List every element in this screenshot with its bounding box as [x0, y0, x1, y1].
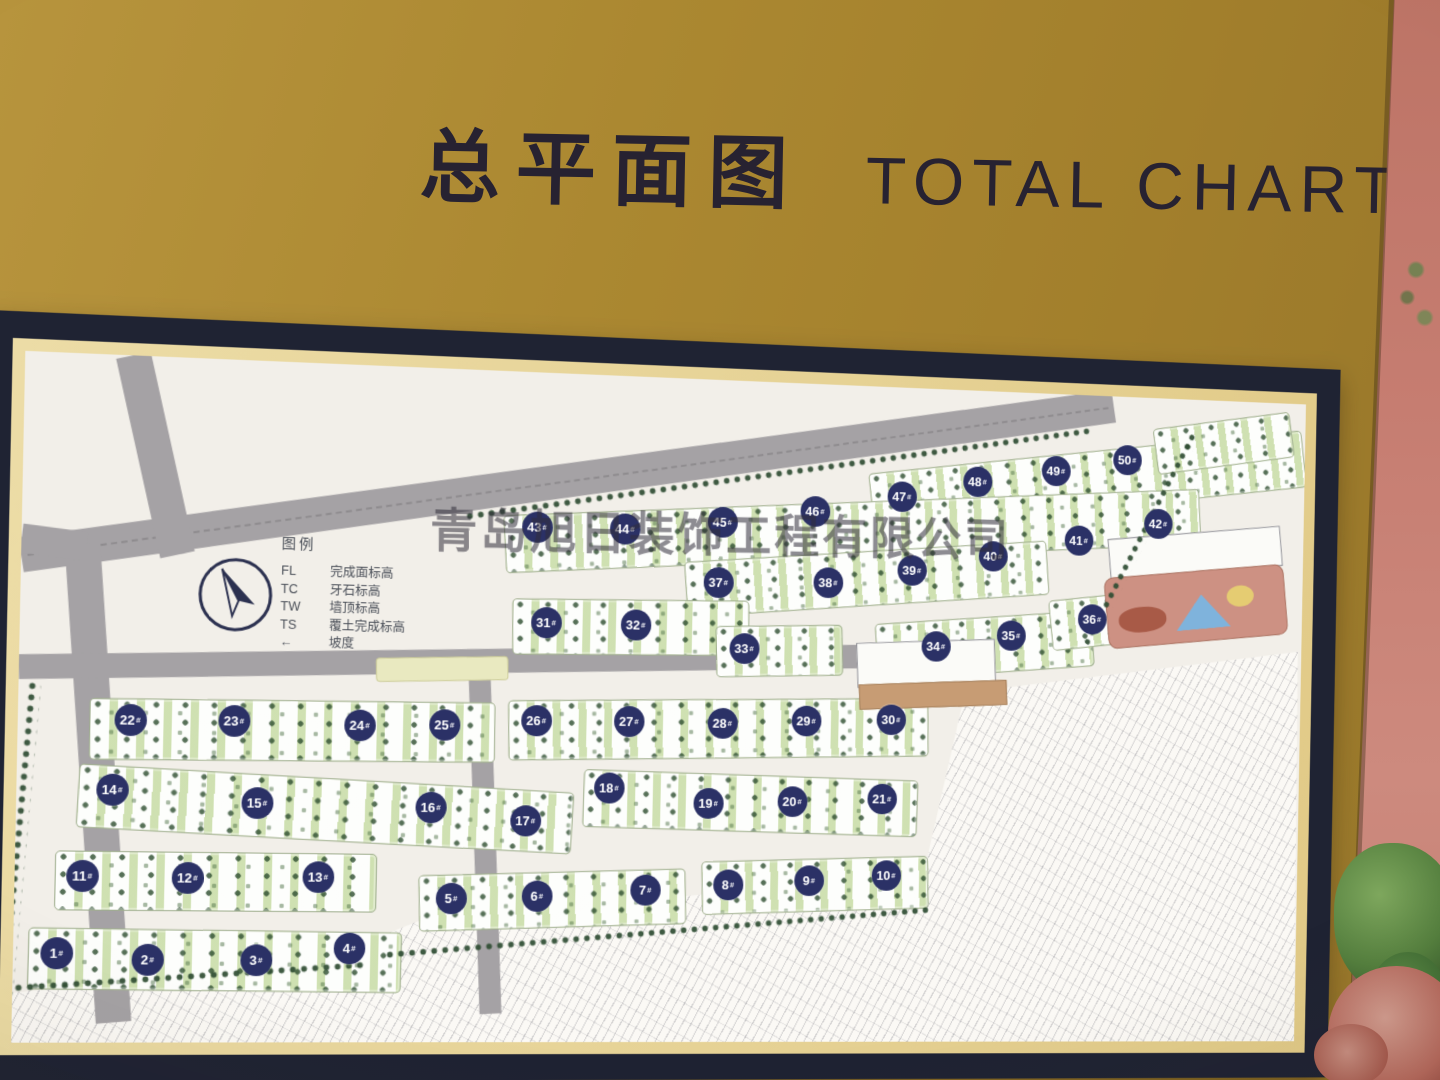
building-number-badge: 15#	[241, 786, 273, 818]
site-plan-map: 图例 FL 完成面标高 TC 牙石标高 TW 墙顶标高	[11, 351, 1306, 1043]
red-leaf-bush	[1314, 1024, 1388, 1080]
building-number-badge: 36#	[1077, 604, 1106, 635]
building-number-badge: 30#	[876, 704, 906, 735]
building-number-badge: 38#	[813, 567, 843, 598]
building-number-badge: 6#	[521, 880, 552, 911]
building-number-badge: 48#	[963, 466, 993, 497]
building-number-badge: 22#	[114, 703, 147, 736]
building-number-badge: 4#	[333, 932, 365, 964]
building-number-badge: 25#	[428, 709, 460, 741]
watermark-text: 青岛旭日装饰工程有限公司	[430, 491, 1011, 570]
building-number-badge: 1#	[40, 937, 73, 969]
building-number-badge: 50#	[1113, 444, 1142, 475]
building-number-badge: 21#	[867, 783, 897, 814]
building-number-badge: 33#	[729, 632, 760, 663]
building-number-badge: 19#	[693, 787, 724, 818]
building-number-badge: 13#	[302, 861, 334, 893]
building-number-badge: 31#	[530, 606, 561, 638]
building-number-badge: 42#	[1144, 508, 1173, 539]
building-number-badge: 35#	[996, 620, 1025, 651]
building-number-badge: 34#	[921, 630, 951, 661]
building-number-badge: 3#	[240, 944, 272, 976]
building-number-badge: 2#	[131, 943, 164, 975]
building-number-badge: 7#	[630, 874, 661, 905]
building-number-badge: 24#	[344, 709, 376, 741]
photo-of-site-plan-sign: 总平面图 TOTAL CHART	[0, 0, 1440, 1080]
building-number-badge: 11#	[65, 859, 98, 891]
map-panel-frame: 图例 FL 完成面标高 TC 牙石标高 TW 墙顶标高	[0, 310, 1341, 1080]
building-number-badge: 20#	[777, 786, 807, 817]
building-number-badge: 27#	[613, 705, 644, 736]
building-number-badge: 37#	[703, 566, 734, 598]
building-number-badge: 12#	[171, 861, 204, 893]
wall-vine	[1396, 244, 1436, 336]
map-panel-trim: 图例 FL 完成面标高 TC 牙石标高 TW 墙顶标高	[0, 338, 1317, 1055]
title-chinese: 总平面图	[419, 103, 805, 226]
building-number-badge: 14#	[96, 773, 129, 805]
building-number-badge: 28#	[707, 707, 738, 738]
building-number-badge: 41#	[1064, 525, 1093, 556]
building-number-badge: 17#	[510, 805, 541, 837]
building-number-badge: 49#	[1041, 455, 1070, 486]
building-number-badge: 29#	[791, 705, 821, 736]
building-number-badge: 18#	[593, 772, 624, 803]
building-number-badge: 9#	[794, 865, 824, 896]
building-number-badge: 16#	[415, 791, 447, 823]
building-number-badge: 10#	[871, 860, 901, 891]
badges-layer: 1#2#3#4#5#6#7#8#9#10#11#12#13#14#15#16#1…	[11, 351, 1306, 1043]
building-number-badge: 23#	[218, 704, 251, 736]
building-number-badge: 8#	[713, 869, 744, 900]
building-number-badge: 26#	[521, 704, 552, 736]
sign-title: 总平面图 TOTAL CHART	[419, 103, 1404, 238]
building-number-badge: 5#	[435, 882, 467, 914]
building-number-badge: 32#	[620, 609, 651, 641]
sign-board: 总平面图 TOTAL CHART	[0, 0, 1440, 1080]
title-english: TOTAL CHART	[865, 142, 1403, 228]
